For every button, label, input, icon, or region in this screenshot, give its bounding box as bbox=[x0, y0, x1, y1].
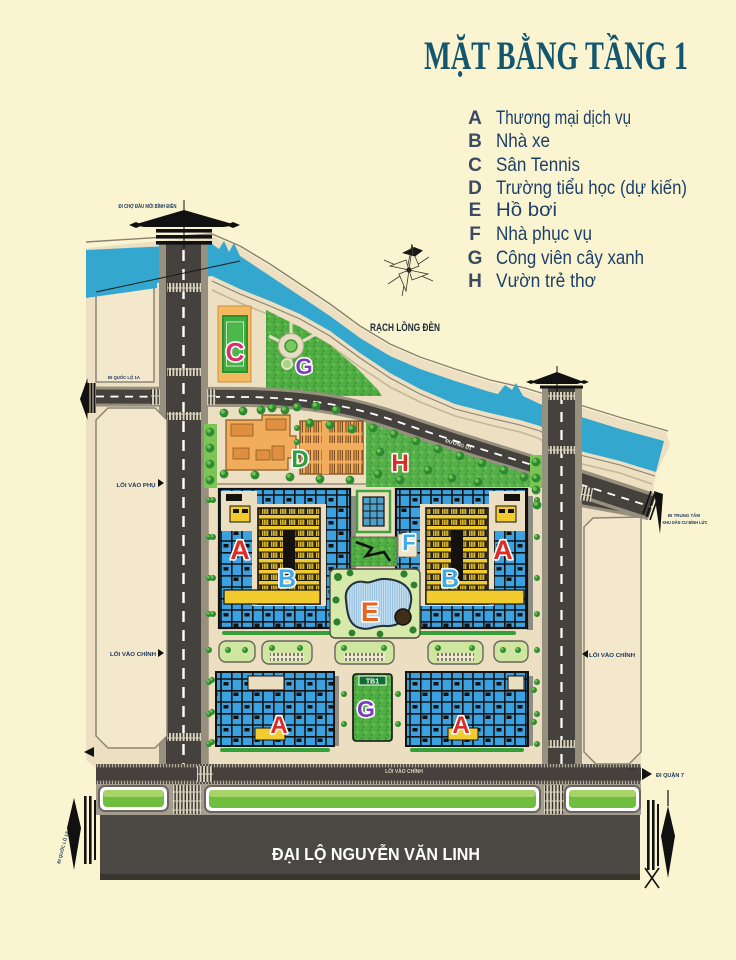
svg-text:A: A bbox=[230, 535, 250, 565]
svg-text:C: C bbox=[226, 337, 245, 367]
svg-text:Nhà phục vụ: Nhà phục vụ bbox=[496, 223, 592, 245]
svg-text:A: A bbox=[493, 535, 513, 565]
svg-text:ĐẠI LỘ NGUYỄN VĂN LINH: ĐẠI LỘ NGUYỄN VĂN LINH bbox=[272, 843, 480, 864]
svg-text:B: B bbox=[278, 565, 296, 593]
svg-text:Trường tiểu học (dự kiến): Trường tiểu học (dự kiến) bbox=[496, 177, 687, 199]
svg-text:LỐI VÀO PHỤ: LỐI VÀO PHỤ bbox=[117, 482, 156, 489]
svg-text:A: A bbox=[468, 108, 482, 129]
svg-text:Hồ bơi: Hồ bơi bbox=[496, 199, 557, 221]
svg-text:H: H bbox=[391, 450, 408, 477]
svg-text:G: G bbox=[357, 696, 375, 722]
svg-text:G: G bbox=[468, 248, 483, 269]
svg-text:H: H bbox=[468, 271, 482, 292]
svg-text:LỐI VÀO CHÍNH: LỐI VÀO CHÍNH bbox=[110, 650, 156, 658]
svg-text:C: C bbox=[468, 155, 482, 176]
svg-text:ĐI TRUNG TÂM: ĐI TRUNG TÂM bbox=[668, 512, 700, 519]
svg-text:ĐI CHỢ ĐẦU MỐI BÌNH ĐIỀN: ĐI CHỢ ĐẦU MỐI BÌNH ĐIỀN bbox=[119, 202, 177, 210]
svg-text:A: A bbox=[270, 712, 287, 739]
svg-text:Công viên cây xanh: Công viên cây xanh bbox=[496, 247, 644, 269]
svg-text:D: D bbox=[291, 446, 308, 473]
svg-text:D: D bbox=[468, 178, 482, 199]
svg-text:Thương mại dịch vụ: Thương mại dịch vụ bbox=[496, 107, 631, 129]
svg-text:Nhà xe: Nhà xe bbox=[496, 130, 550, 152]
svg-text:Sân Tennis: Sân Tennis bbox=[496, 154, 580, 176]
svg-text:G: G bbox=[295, 354, 312, 379]
svg-text:RẠCH LỒNG ĐÈN: RẠCH LỒNG ĐÈN bbox=[370, 321, 440, 334]
svg-text:Vườn trẻ thơ: Vườn trẻ thơ bbox=[496, 270, 596, 292]
svg-text:E: E bbox=[469, 200, 482, 221]
svg-text:E: E bbox=[361, 597, 379, 627]
svg-text:LỐI VÀO CHÍNH: LỐI VÀO CHÍNH bbox=[385, 767, 423, 775]
svg-text:TB1: TB1 bbox=[366, 679, 379, 686]
svg-text:LỐI VÀO CHÍNH: LỐI VÀO CHÍNH bbox=[589, 651, 635, 659]
svg-text:MẶT BẰNG TẦNG 1: MẶT BẰNG TẦNG 1 bbox=[424, 33, 688, 78]
svg-text:A: A bbox=[452, 712, 469, 739]
svg-text:B: B bbox=[441, 565, 459, 593]
svg-text:F: F bbox=[469, 224, 481, 245]
svg-text:ĐI QUẬN 7: ĐI QUẬN 7 bbox=[656, 772, 684, 779]
svg-text:B: B bbox=[468, 131, 482, 152]
svg-text:F: F bbox=[402, 530, 415, 555]
